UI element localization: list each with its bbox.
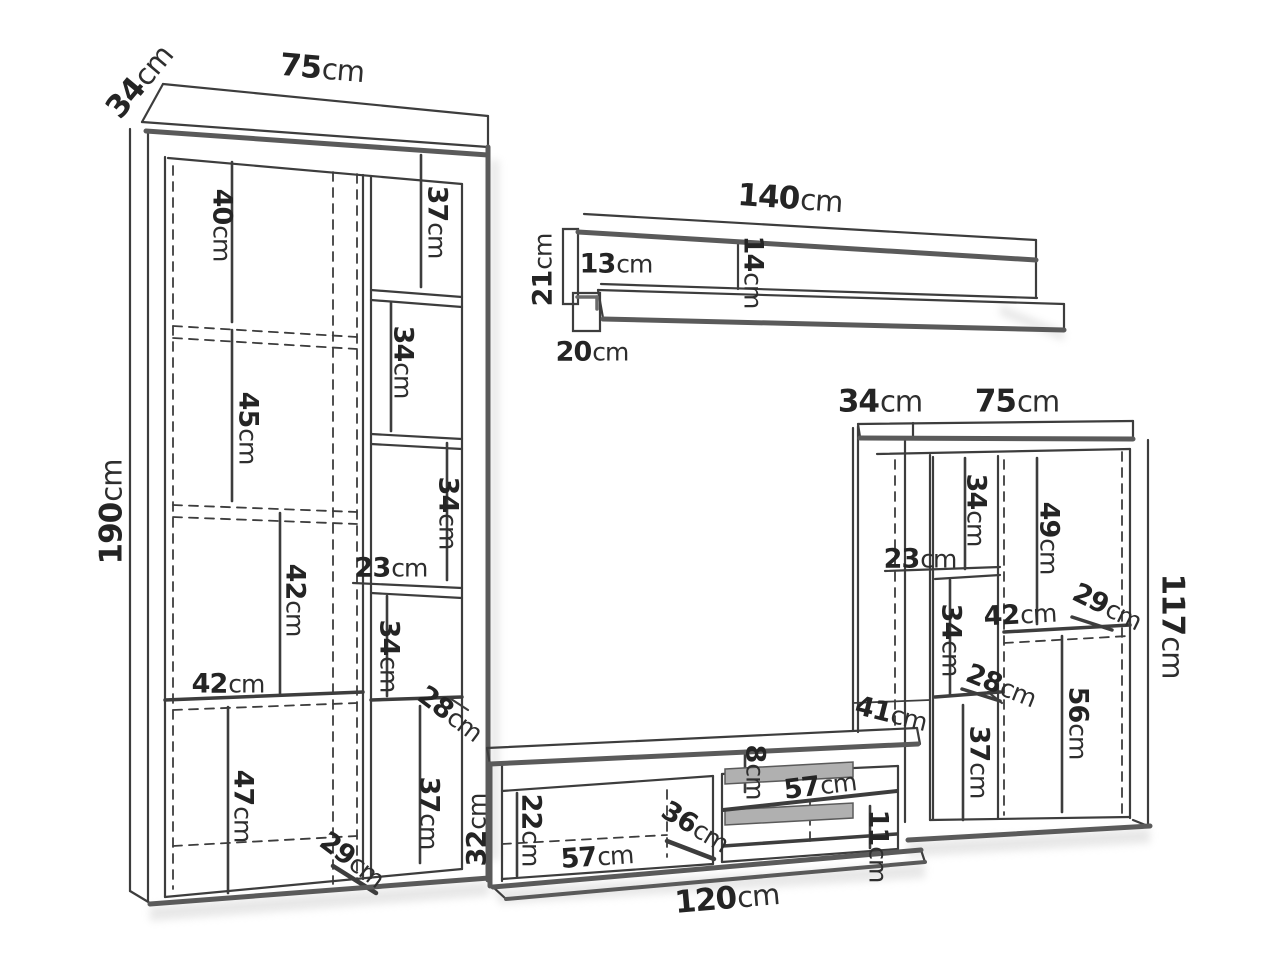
dim-cabinet-56: 56cm: [1065, 687, 1092, 760]
dim-cabinet-34a: 34cm: [963, 474, 990, 547]
dim-bookcase-cubby-23: 23cm: [355, 555, 428, 582]
dim-cabinet-37: 37cm: [966, 726, 993, 799]
dim-cabinet-23: 23cm: [884, 546, 957, 573]
dim-bookcase-cubby-34b: 34cm: [435, 477, 462, 550]
dim-shelf-depth-20: 20cm: [556, 339, 629, 366]
dim-bookcase-shelf-45: 45cm: [235, 392, 262, 465]
furniture-dimension-diagram: 34cm 75cm 190cm 40cm 45cm 42cm 42cm 47cm…: [0, 0, 1280, 960]
dim-cabinet-42: 42cm: [983, 600, 1057, 631]
dim-tv-height-32: 32cm: [464, 794, 491, 867]
diagram-linework: [0, 0, 1280, 960]
dim-tv-shelf-11: 11cm: [865, 810, 892, 883]
dim-bookcase-shelf-width: 42cm: [192, 671, 265, 698]
dim-bookcase-shelf-40: 40cm: [209, 189, 236, 262]
dim-shelf-width: 140cm: [737, 180, 844, 218]
dim-bookcase-width: 75cm: [279, 50, 366, 88]
dim-cabinet-34b: 34cm: [938, 604, 965, 677]
dim-cabinet-depth: 34cm: [838, 387, 922, 418]
dim-shelf-mid-14: 14cm: [740, 236, 767, 309]
dim-shelf-panel-13: 13cm: [580, 251, 653, 278]
dim-shelf-end-height: 21cm: [530, 234, 557, 307]
dim-bookcase-shelf-42v: 42cm: [282, 564, 309, 637]
dim-cabinet-width: 75cm: [975, 387, 1059, 418]
dim-tv-inner-57: 57cm: [560, 841, 634, 873]
dim-tv-gap-8: 8cm: [742, 745, 769, 800]
dim-bookcase-shelf-47: 47cm: [230, 770, 257, 843]
dim-bookcase-height: 190cm: [97, 460, 128, 565]
dim-bookcase-cubby-37: 37cm: [424, 186, 451, 259]
dim-cabinet-49: 49cm: [1036, 502, 1063, 575]
dim-bookcase-cubby-34c: 34cm: [376, 620, 403, 693]
dim-cabinet-height: 117cm: [1157, 574, 1188, 679]
dim-bookcase-cubby-34a: 34cm: [390, 326, 417, 399]
dim-tv-inner-22: 22cm: [518, 794, 545, 867]
dim-bookcase-cubby-37b: 37cm: [416, 777, 443, 850]
